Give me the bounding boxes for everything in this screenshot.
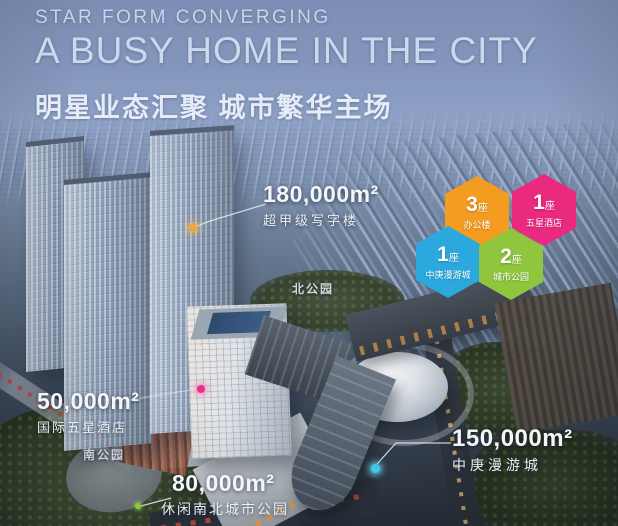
office-marker-dot [189, 224, 197, 232]
east-midrise-blocks [494, 283, 618, 433]
office-area-label: 超甲级写字楼 [263, 210, 379, 229]
badge-mall-label: 中庚漫游城 [425, 268, 470, 281]
badge-park-number: 2座 [500, 246, 522, 267]
park-area-label: 休闲南北城市公园 [161, 499, 289, 519]
mall-marker-dot [371, 464, 380, 473]
mall-area-value: 150,000m² [452, 427, 573, 451]
park-area-annotation: 80,000m² 休闲南北城市公园 [161, 472, 289, 519]
south-park-label: 南公园 [83, 446, 125, 463]
badge-hotel-number: 1座 [533, 192, 555, 213]
badge-mall-number: 1座 [437, 244, 459, 265]
office-area-value: 180,000m² [263, 183, 379, 206]
mall-area-annotation: 150,000m² 中庚漫游城 [452, 427, 573, 475]
badge-park-label: 城市公园 [493, 270, 529, 283]
kicker-text: STAR FORM CONVERGING [35, 7, 538, 29]
hotel-area-annotation: 50,000m² 国际五星酒店 [37, 390, 139, 436]
badge-hotel-label: 五星酒店 [526, 216, 562, 229]
north-park-label: 北公园 [292, 280, 334, 297]
mall-area-label: 中庚漫游城 [452, 455, 573, 475]
poster-subtitle-cn: 明星业态汇聚 城市繁华主场 [35, 86, 538, 125]
poster-title: A BUSY HOME IN THE CITY [35, 32, 538, 71]
hotel-area-value: 50,000m² [37, 390, 139, 413]
badge-office-label: 办公楼 [463, 218, 490, 231]
park-marker-dot [135, 503, 141, 509]
promo-aerial-poster: STAR FORM CONVERGING A BUSY HOME IN THE … [0, 0, 618, 526]
poster-header: STAR FORM CONVERGING A BUSY HOME IN THE … [35, 7, 538, 125]
badge-office-number: 3座 [466, 194, 488, 215]
hotel-marker-dot [197, 385, 205, 393]
office-area-annotation: 180,000m² 超甲级写字楼 [263, 183, 379, 229]
hotel-area-label: 国际五星酒店 [37, 417, 139, 436]
park-area-value: 80,000m² [161, 472, 289, 495]
